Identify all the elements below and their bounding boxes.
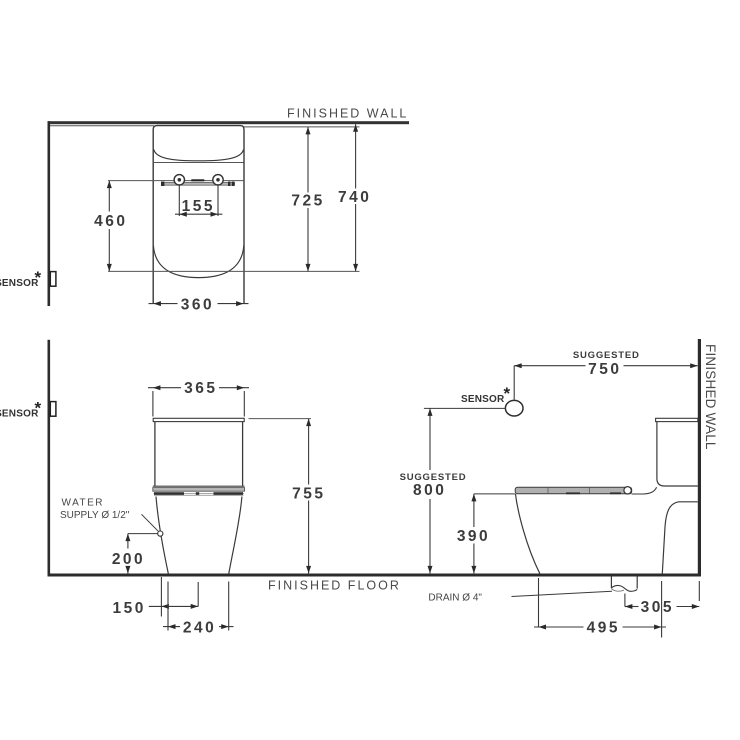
svg-text:750: 750 <box>588 361 621 378</box>
svg-text:*: * <box>35 398 42 417</box>
svg-text:150: 150 <box>113 600 146 617</box>
svg-text:360: 360 <box>181 296 214 313</box>
svg-text:155: 155 <box>182 198 215 215</box>
svg-text:SENSOR: SENSOR <box>0 278 39 289</box>
svg-text:390: 390 <box>457 528 490 545</box>
svg-text:FINISHED WALL: FINISHED WALL <box>703 344 718 450</box>
svg-text:740: 740 <box>338 189 371 206</box>
svg-text:FINISHED FLOOR: FINISHED FLOOR <box>268 579 401 593</box>
svg-text:365: 365 <box>184 380 217 397</box>
svg-text:460: 460 <box>94 213 127 230</box>
svg-text:495: 495 <box>587 620 620 637</box>
svg-text:*: * <box>35 268 42 287</box>
svg-text:SUGGESTED: SUGGESTED <box>573 350 640 361</box>
svg-text:305: 305 <box>641 599 674 616</box>
svg-text:SENSOR: SENSOR <box>0 408 39 419</box>
svg-text:SENSOR: SENSOR <box>461 394 505 405</box>
svg-text:WATER: WATER <box>62 498 105 509</box>
svg-text:725: 725 <box>291 193 324 210</box>
svg-text:FINISHED WALL: FINISHED WALL <box>287 106 408 120</box>
svg-text:*: * <box>504 384 511 403</box>
svg-text:SUPPLY Ø 1/2": SUPPLY Ø 1/2" <box>60 510 130 521</box>
svg-text:800: 800 <box>413 482 446 499</box>
svg-text:755: 755 <box>292 485 325 502</box>
svg-text:240: 240 <box>183 619 216 636</box>
svg-text:DRAIN Ø 4": DRAIN Ø 4" <box>428 593 482 604</box>
svg-text:200: 200 <box>112 551 145 568</box>
